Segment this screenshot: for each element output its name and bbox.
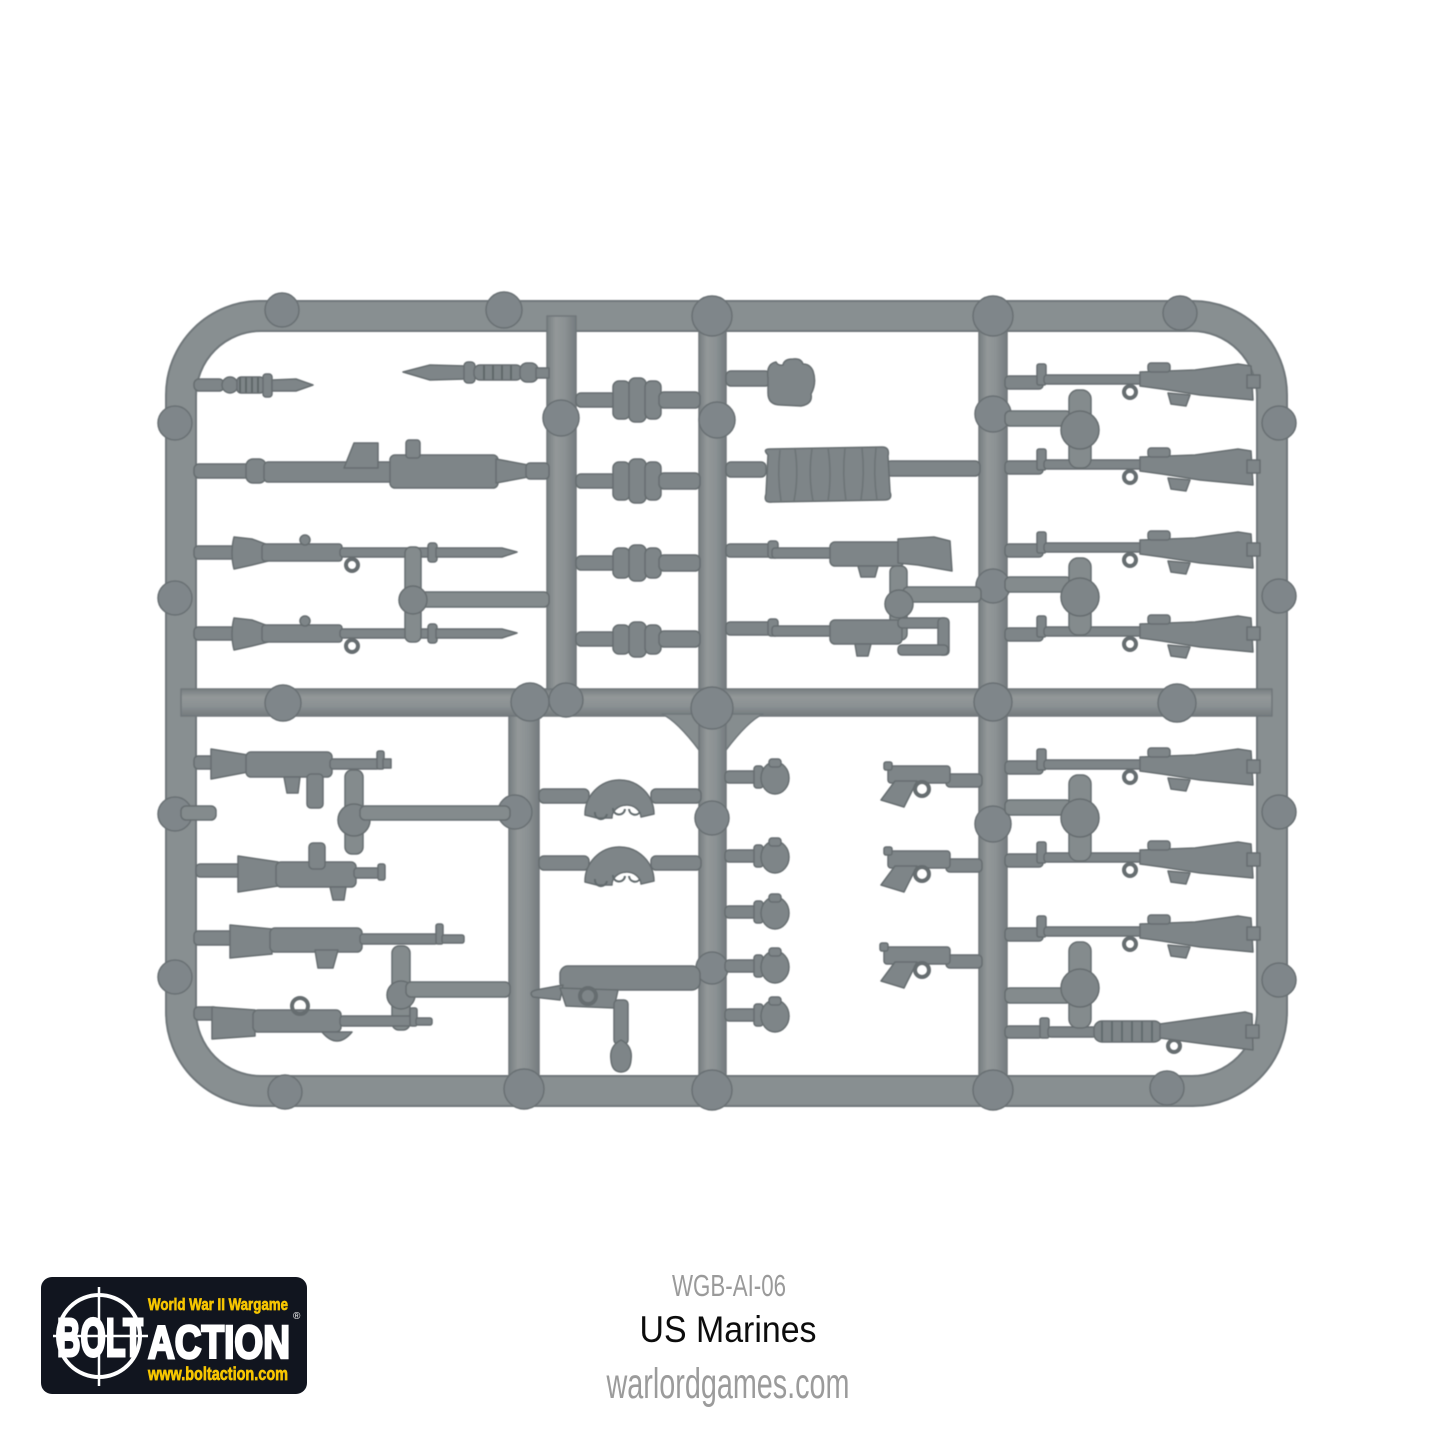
svg-text:warlordgames.com: warlordgames.com [606, 1360, 850, 1408]
svg-text:®: ® [293, 1311, 301, 1322]
svg-text:World War II Wargame: World War II Wargame [148, 1295, 288, 1314]
svg-text:www.boltaction.com: www.boltaction.com [147, 1364, 288, 1384]
svg-text:WGB-AI-06: WGB-AI-06 [672, 1268, 786, 1303]
svg-text:ACTION: ACTION [148, 1316, 290, 1368]
svg-text:BOLT: BOLT [57, 1308, 143, 1368]
svg-text:US Marines: US Marines [640, 1309, 817, 1350]
